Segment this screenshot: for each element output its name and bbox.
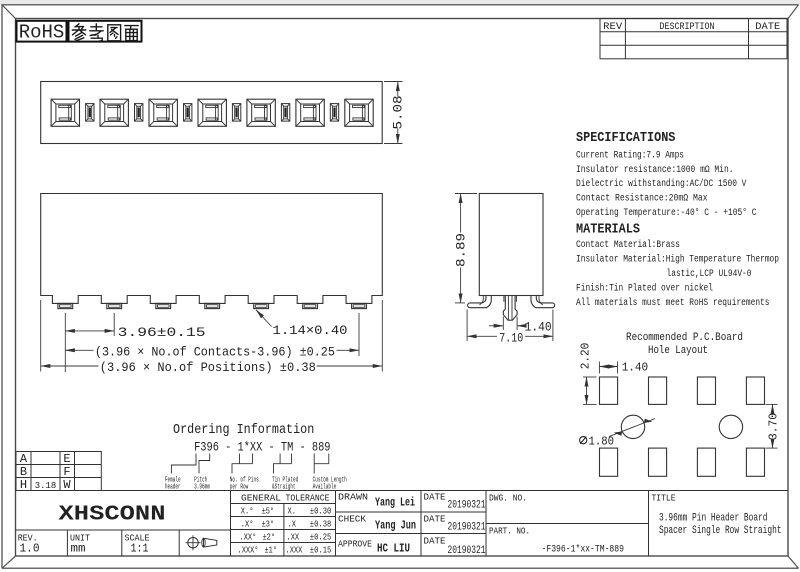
svg-text:(3.96 × No.of Contacts-3.96) ±: (3.96 × No.of Contacts-3.96) ±0.25	[95, 344, 335, 359]
svg-text:XHSCONN: XHSCONN	[59, 503, 166, 527]
svg-text:1.14×0.40: 1.14×0.40	[273, 323, 348, 338]
svg-text:1.0: 1.0	[20, 542, 40, 556]
svg-text:±3°: ±3°	[262, 520, 275, 530]
svg-text:.XX: .XX	[287, 533, 300, 543]
svg-text:PART. NO.: PART. NO.	[489, 527, 530, 537]
svg-text:mm: mm	[71, 542, 86, 556]
svg-text:Recommended P.C.Board: Recommended P.C.Board	[626, 332, 743, 344]
svg-text:DATE: DATE	[424, 537, 446, 547]
svg-text:Operating Temperature:-40° C -: Operating Temperature:-40° C - +105° C	[576, 207, 757, 219]
svg-text:±0.25: ±0.25	[310, 533, 332, 543]
svg-text:±0.30: ±0.30	[310, 507, 332, 517]
svg-text:Ordering Information: Ordering Information	[173, 423, 314, 438]
svg-text:DWG. NO.: DWG. NO.	[489, 494, 527, 504]
svg-text:±1°: ±1°	[265, 546, 278, 556]
svg-text:.XXX°: .XXX°	[238, 546, 259, 556]
svg-text:Dielectric withstanding:AC/DC: Dielectric withstanding:AC/DC 1500 V	[576, 178, 746, 190]
svg-text:Insulator Material:High Temper: Insulator Material:High Temperature Ther…	[576, 254, 779, 266]
svg-text:RoHS: RoHS	[19, 22, 65, 44]
svg-text:A: A	[20, 452, 28, 466]
svg-text:20190321: 20190321	[448, 500, 486, 512]
svg-text:TITLE: TITLE	[652, 494, 676, 504]
svg-text:3.70: 3.70	[766, 413, 780, 440]
svg-text:F396 - 1*XX - TM - 889: F396 - 1*XX - TM - 889	[194, 441, 330, 455]
svg-text:1:1: 1:1	[131, 542, 149, 556]
svg-text:W: W	[63, 478, 71, 492]
svg-text:DRAWN: DRAWN	[338, 493, 368, 503]
svg-text:MATERIALS: MATERIALS	[576, 223, 640, 238]
svg-text:DATE: DATE	[424, 493, 446, 503]
svg-text:3.96mm Pin Header Board: 3.96mm Pin Header Board	[659, 512, 768, 524]
svg-text:Hole Layout: Hole Layout	[648, 345, 708, 357]
svg-text:20190321: 20190321	[448, 522, 486, 534]
svg-text:REV: REV	[603, 21, 623, 33]
svg-text:CHECK: CHECK	[338, 515, 367, 525]
svg-text:Insulator resistance:1000 mΩ M: Insulator resistance:1000 mΩ Min.	[576, 164, 734, 176]
svg-text:(3.96 × No.of Positions) ±0.38: (3.96 × No.of Positions) ±0.38	[100, 360, 316, 375]
svg-text:3.18: 3.18	[35, 481, 57, 491]
svg-text:DESCRIPTION: DESCRIPTION	[660, 21, 715, 33]
svg-text:3.96±0.15: 3.96±0.15	[118, 325, 206, 340]
svg-text:1.40: 1.40	[525, 320, 552, 335]
svg-text:B: B	[20, 465, 27, 479]
svg-text:X.°: X.°	[241, 507, 254, 517]
svg-text:7.10: 7.10	[499, 330, 523, 345]
svg-text:E: E	[63, 452, 70, 466]
svg-text:APPROVE: APPROVE	[338, 540, 372, 550]
svg-text:1.80: 1.80	[589, 434, 615, 448]
svg-text:Current Rating:7.9 Amps: Current Rating:7.9 Amps	[576, 149, 684, 161]
svg-text:20190321: 20190321	[448, 545, 486, 557]
svg-text:DATE: DATE	[424, 515, 446, 525]
svg-text:1.40: 1.40	[622, 360, 649, 374]
svg-text:.XX°: .XX°	[240, 533, 257, 543]
svg-text:lastic,LCP UL94V-0: lastic,LCP UL94V-0	[667, 268, 752, 280]
svg-text:8.89: 8.89	[453, 233, 468, 267]
svg-text:±5°: ±5°	[262, 507, 275, 517]
svg-text:±0.38: ±0.38	[310, 520, 332, 530]
svg-text:GENERAL: GENERAL	[241, 494, 281, 504]
svg-text:Spacer Single Row Straight: Spacer Single Row Straight	[659, 525, 782, 537]
svg-text:SPECIFICATIONS: SPECIFICATIONS	[576, 131, 675, 146]
svg-text:X.: X.	[288, 507, 296, 517]
svg-text:Contact Material:Brass: Contact Material:Brass	[576, 239, 680, 251]
svg-text:.X°: .X°	[241, 520, 254, 530]
svg-text:H: H	[20, 478, 27, 492]
svg-text:.XXX: .XXX	[286, 546, 303, 556]
svg-text:5.08: 5.08	[391, 96, 406, 130]
svg-text:All materials must meet RoHS r: All materials must meet RoHS requirement…	[576, 297, 770, 309]
svg-text:.X: .X	[288, 520, 297, 530]
svg-text:F: F	[63, 465, 70, 479]
svg-text:Yang Jun: Yang Jun	[375, 520, 416, 533]
svg-text:±2°: ±2°	[263, 533, 276, 543]
svg-text:TOLERANCE: TOLERANCE	[286, 494, 330, 504]
svg-text:±0.15: ±0.15	[310, 546, 332, 556]
svg-text:Contact Resistance:20mΩ Max: Contact Resistance:20mΩ Max	[576, 193, 708, 205]
svg-text:Finish:Tin Plated over nickel: Finish:Tin Plated over nickel	[576, 283, 713, 295]
svg-text:2.20: 2.20	[579, 343, 593, 370]
svg-text:DATE: DATE	[755, 21, 780, 33]
svg-text:HC LIU: HC LIU	[377, 543, 410, 556]
svg-text:-F396-1*xx-TM-889: -F396-1*xx-TM-889	[542, 544, 625, 556]
svg-text:Yang Lei: Yang Lei	[375, 497, 415, 510]
